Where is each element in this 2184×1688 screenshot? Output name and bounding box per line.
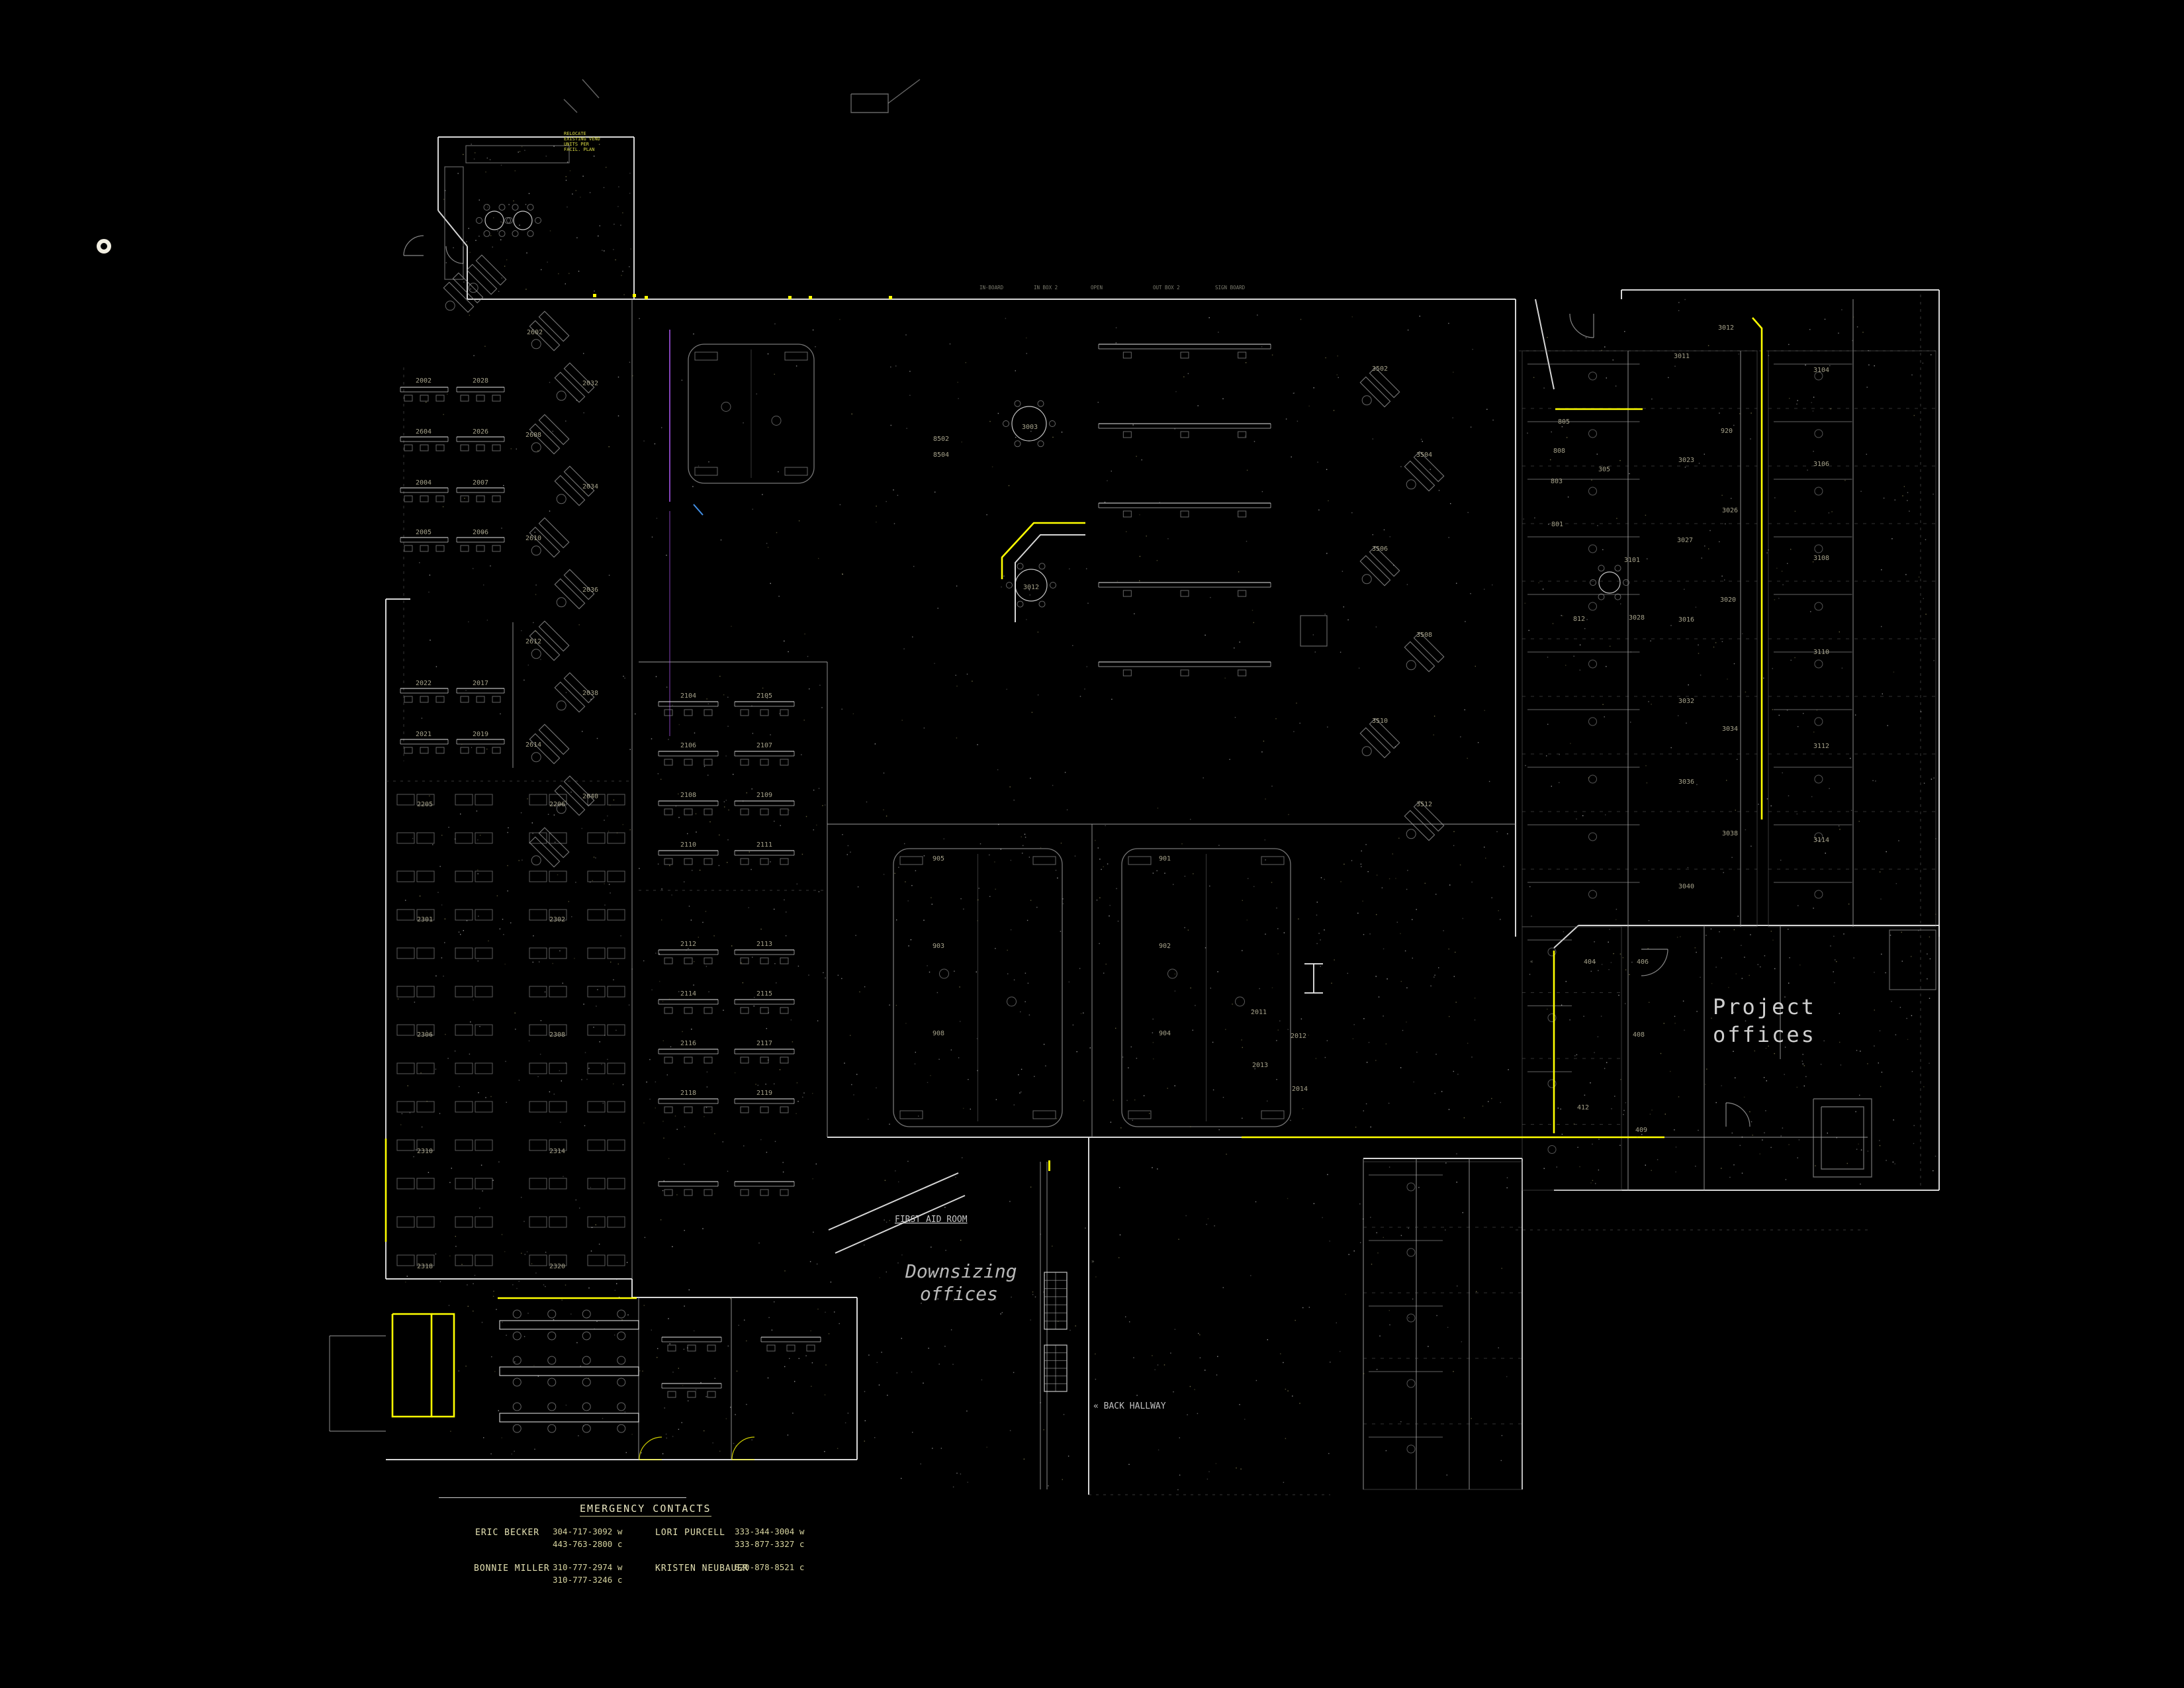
contact-phone: 310-777-3246 c xyxy=(553,1573,622,1586)
svg-text:2040: 2040 xyxy=(582,793,598,800)
svg-text:2205: 2205 xyxy=(417,801,433,808)
contact-phone: 310-777-2974 w xyxy=(553,1561,622,1573)
svg-text:2036: 2036 xyxy=(582,586,598,594)
contact-phone: 820-878-8521 c xyxy=(735,1561,804,1573)
svg-text:902: 902 xyxy=(1159,943,1171,950)
svg-text:408: 408 xyxy=(1633,1031,1645,1039)
svg-text:2032: 2032 xyxy=(582,380,598,387)
svg-text:2113: 2113 xyxy=(756,941,772,948)
svg-text:2206: 2206 xyxy=(549,801,565,808)
svg-text:3508: 3508 xyxy=(1416,632,1432,639)
emergency-contacts-legend: EMERGENCY CONTACTS ERIC BECKER 304-717-3… xyxy=(437,1493,874,1613)
svg-text:2612: 2612 xyxy=(525,638,541,645)
svg-text:offices: offices xyxy=(1713,1022,1816,1047)
svg-text:EXISTING VEND: EXISTING VEND xyxy=(564,136,600,142)
svg-text:2107: 2107 xyxy=(756,742,772,749)
svg-text:3012: 3012 xyxy=(1023,584,1039,591)
legend-title: EMERGENCY CONTACTS xyxy=(580,1503,711,1517)
svg-text:812: 812 xyxy=(1573,616,1585,623)
svg-text:2012: 2012 xyxy=(1291,1033,1306,1040)
svg-text:UNITS PER: UNITS PER xyxy=(564,142,590,147)
svg-text:2117: 2117 xyxy=(756,1040,772,1047)
svg-text:903: 903 xyxy=(933,943,944,950)
svg-text:2602: 2602 xyxy=(527,329,543,336)
contact-phone: 333-344-3004 w xyxy=(735,1525,804,1538)
svg-text:3502: 3502 xyxy=(1372,365,1388,373)
svg-text:3003: 3003 xyxy=(1022,424,1038,431)
svg-text:3016: 3016 xyxy=(1678,616,1694,624)
svg-text:Downsizing: Downsizing xyxy=(905,1260,1017,1282)
svg-text:3036: 3036 xyxy=(1678,778,1694,786)
svg-text:3114: 3114 xyxy=(1813,837,1829,844)
svg-text:2007: 2007 xyxy=(473,479,488,487)
svg-text:2301: 2301 xyxy=(417,916,433,923)
svg-text:2614: 2614 xyxy=(525,741,541,749)
svg-text:2116: 2116 xyxy=(680,1040,696,1047)
svg-text:3023: 3023 xyxy=(1678,457,1694,464)
svg-text:3027: 3027 xyxy=(1677,537,1693,544)
svg-text:2109: 2109 xyxy=(756,792,772,799)
cad-viewport[interactable]: 2002202826042026200420072005200620222017… xyxy=(0,0,2184,1688)
svg-text:3032: 3032 xyxy=(1678,698,1694,705)
contact-phone: 333-877-3327 c xyxy=(735,1538,804,1550)
svg-text:2104: 2104 xyxy=(680,692,696,700)
svg-text:2604: 2604 xyxy=(416,428,432,436)
svg-text:801: 801 xyxy=(1551,521,1563,528)
svg-text:2022: 2022 xyxy=(416,680,432,687)
svg-text:3038: 3038 xyxy=(1722,830,1738,837)
svg-text:2119: 2119 xyxy=(756,1090,772,1097)
svg-text:409: 409 xyxy=(1635,1127,1647,1134)
svg-text:2308: 2308 xyxy=(549,1031,565,1039)
svg-text:8504: 8504 xyxy=(933,451,949,459)
svg-text:2002: 2002 xyxy=(416,377,432,385)
svg-text:404: 404 xyxy=(1584,959,1596,966)
svg-text:«: « xyxy=(1530,959,1533,964)
svg-text:2115: 2115 xyxy=(756,990,772,998)
svg-text:2005: 2005 xyxy=(416,529,432,536)
svg-text:305: 305 xyxy=(1598,466,1610,473)
svg-text:2013: 2013 xyxy=(1252,1062,1268,1069)
svg-text:SIGN BOARD: SIGN BOARD xyxy=(1215,285,1246,291)
svg-text:908: 908 xyxy=(933,1030,944,1037)
svg-text:3026: 3026 xyxy=(1722,507,1738,514)
svg-text:RELOCATE: RELOCATE xyxy=(564,131,586,136)
svg-text:2112: 2112 xyxy=(680,941,696,948)
svg-text:2034: 2034 xyxy=(582,483,598,491)
svg-text:2021: 2021 xyxy=(416,731,432,738)
svg-text:805: 805 xyxy=(1558,418,1570,426)
svg-text:3510: 3510 xyxy=(1372,718,1388,725)
svg-text:3512: 3512 xyxy=(1416,801,1432,808)
svg-text:412: 412 xyxy=(1577,1104,1589,1111)
svg-text:2320: 2320 xyxy=(549,1263,565,1270)
legend-divider xyxy=(439,1497,686,1498)
svg-text:3112: 3112 xyxy=(1813,743,1829,750)
svg-text:905: 905 xyxy=(933,855,944,863)
svg-text:3110: 3110 xyxy=(1813,649,1829,656)
svg-text:»: » xyxy=(1091,1258,1095,1264)
svg-text:OPEN: OPEN xyxy=(1091,285,1103,291)
svg-text:2111: 2111 xyxy=(756,841,772,849)
svg-text:3034: 3034 xyxy=(1722,726,1738,733)
contact-name: ERIC BECKER xyxy=(475,1528,539,1538)
contact-phone: 443-763-2800 c xyxy=(553,1538,622,1550)
svg-text:3020: 3020 xyxy=(1720,596,1736,604)
svg-text:2118: 2118 xyxy=(680,1090,696,1097)
contact-phone: 304-717-3092 w xyxy=(553,1525,622,1538)
svg-text:406: 406 xyxy=(1637,959,1649,966)
svg-text:904: 904 xyxy=(1159,1030,1171,1037)
svg-text:2610: 2610 xyxy=(525,535,541,542)
floor-plan-drawing: 2002202826042026200420072005200620222017… xyxy=(0,0,2184,1688)
svg-text:920: 920 xyxy=(1721,428,1733,435)
svg-text:offices: offices xyxy=(920,1283,998,1305)
svg-text:2306: 2306 xyxy=(417,1031,433,1039)
svg-text:2011: 2011 xyxy=(1251,1009,1267,1016)
svg-text:2017: 2017 xyxy=(473,680,488,687)
svg-text:2026: 2026 xyxy=(473,428,488,436)
svg-text:2106: 2106 xyxy=(680,742,696,749)
svg-text:3028: 3028 xyxy=(1629,614,1645,622)
svg-text:3108: 3108 xyxy=(1813,555,1829,562)
svg-text:FIRST AID ROOM: FIRST AID ROOM xyxy=(895,1215,968,1225)
svg-text:2302: 2302 xyxy=(549,916,565,923)
svg-text:2608: 2608 xyxy=(525,432,541,439)
svg-text:3040: 3040 xyxy=(1678,883,1694,890)
svg-text:803: 803 xyxy=(1551,478,1563,485)
svg-text:901: 901 xyxy=(1159,855,1171,863)
svg-text:OUT BOX 2: OUT BOX 2 xyxy=(1153,285,1180,291)
svg-text:IN BOX 2: IN BOX 2 xyxy=(1034,285,1058,291)
svg-text:2314: 2314 xyxy=(549,1148,565,1155)
svg-text:2110: 2110 xyxy=(680,841,696,849)
svg-text:2014: 2014 xyxy=(1292,1086,1308,1093)
svg-text:3504: 3504 xyxy=(1416,451,1432,459)
svg-text:808: 808 xyxy=(1553,447,1565,455)
svg-text:2318: 2318 xyxy=(417,1263,433,1270)
svg-text:2108: 2108 xyxy=(680,792,696,799)
svg-text:3104: 3104 xyxy=(1813,367,1829,374)
svg-text:3011: 3011 xyxy=(1674,353,1690,360)
svg-text:8502: 8502 xyxy=(933,436,949,443)
svg-text:3101: 3101 xyxy=(1624,557,1640,564)
svg-text:2004: 2004 xyxy=(416,479,432,487)
svg-text:2105: 2105 xyxy=(756,692,772,700)
svg-text:2310: 2310 xyxy=(417,1148,433,1155)
svg-text:IN-BOARD: IN-BOARD xyxy=(979,285,1004,291)
svg-text:2019: 2019 xyxy=(473,731,488,738)
svg-text:2114: 2114 xyxy=(680,990,696,998)
contact-name: BONNIE MILLER xyxy=(474,1564,550,1573)
svg-text:« BACK HALLWAY: « BACK HALLWAY xyxy=(1093,1401,1166,1411)
svg-text:2038: 2038 xyxy=(582,690,598,697)
svg-text:3012: 3012 xyxy=(1718,324,1734,332)
contact-name: LORI PURCELL xyxy=(655,1528,725,1538)
svg-text:FACIL. PLAN: FACIL. PLAN xyxy=(564,147,594,152)
svg-text:3106: 3106 xyxy=(1813,461,1829,468)
svg-text:2006: 2006 xyxy=(473,529,488,536)
svg-text:Project: Project xyxy=(1713,994,1816,1019)
svg-text:3506: 3506 xyxy=(1372,545,1388,553)
svg-text:2028: 2028 xyxy=(473,377,488,385)
column-ring-marker xyxy=(97,239,111,254)
